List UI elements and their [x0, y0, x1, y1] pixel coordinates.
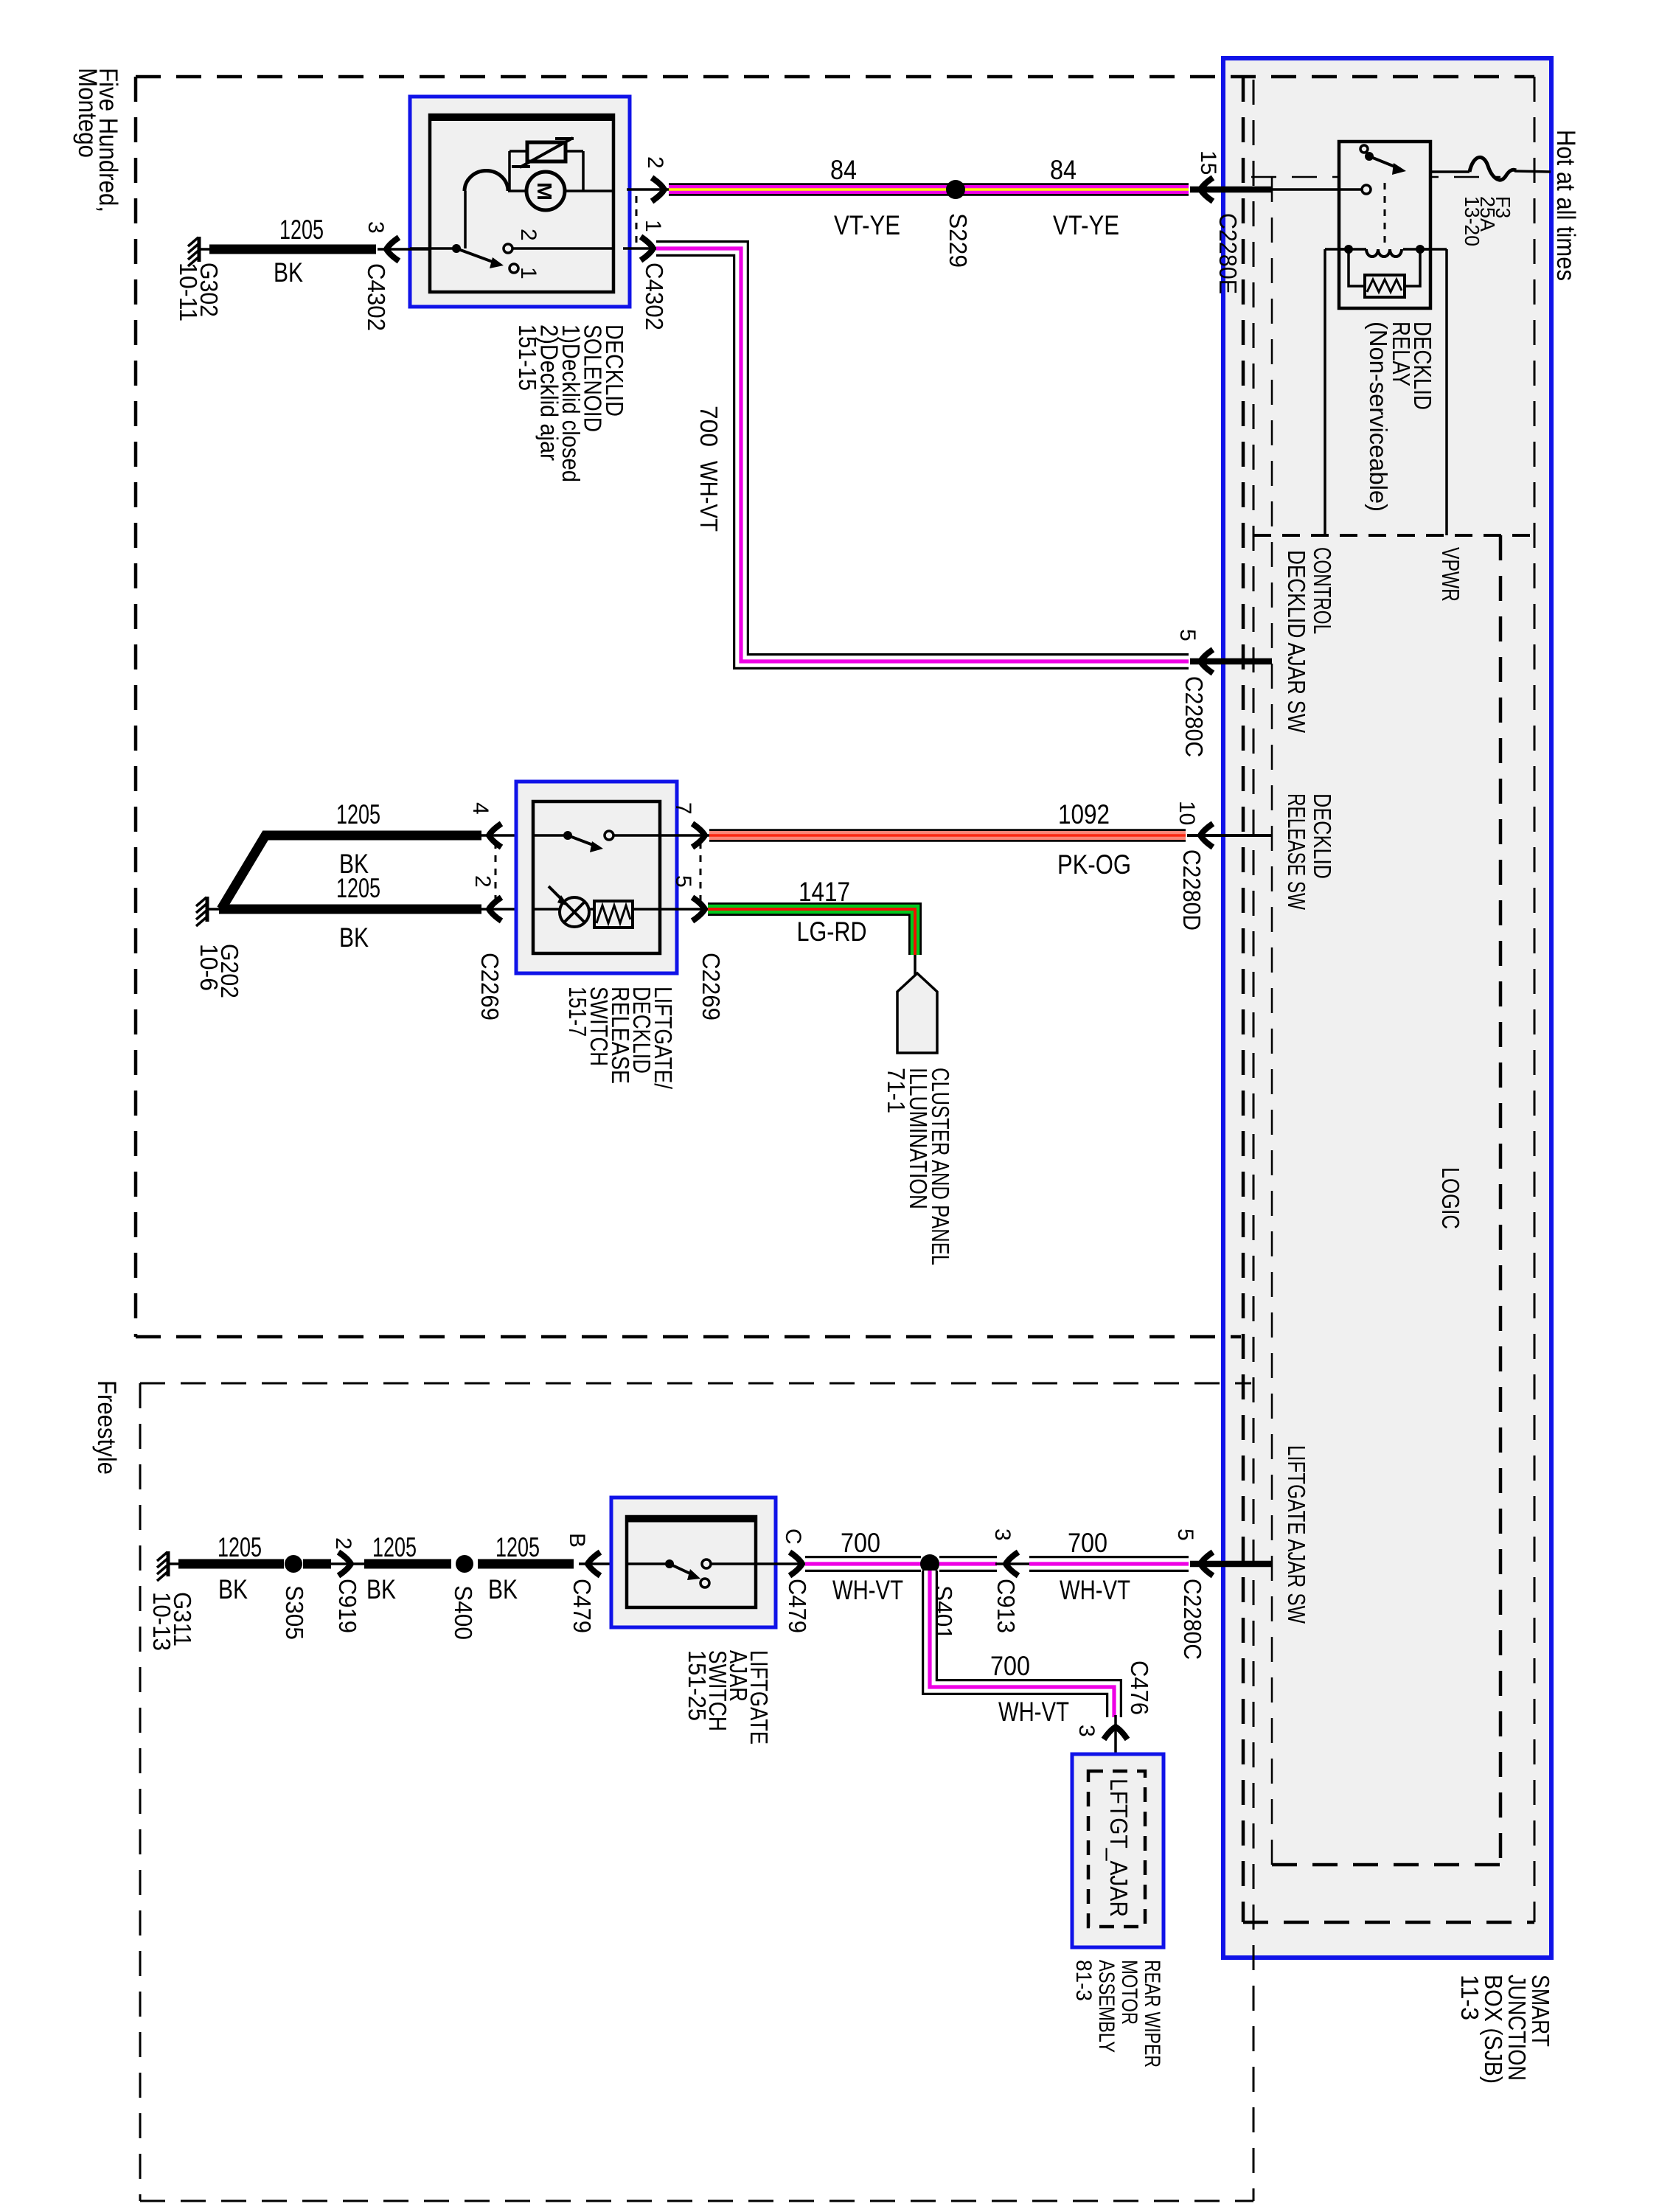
svg-text:C913: C913 — [992, 1579, 1020, 1633]
svg-text:LIFTGATE AJAR SW: LIFTGATE AJAR SW — [1283, 1445, 1310, 1624]
svg-text:4: 4 — [468, 802, 493, 815]
svg-text:84: 84 — [1050, 155, 1077, 185]
svg-text:PK-OG: PK-OG — [1057, 849, 1131, 880]
svg-text:C2280D: C2280D — [1178, 849, 1206, 931]
svg-text:VPWR: VPWR — [1437, 547, 1464, 602]
svg-text:3: 3 — [1074, 1725, 1099, 1737]
svg-text:700: 700 — [990, 1651, 1030, 1681]
svg-text:C2269: C2269 — [698, 953, 725, 1020]
svg-text:5: 5 — [1175, 629, 1200, 641]
svg-text:C476: C476 — [1126, 1660, 1153, 1715]
svg-text:BK: BK — [218, 1574, 248, 1604]
svg-text:1205: 1205 — [372, 1532, 417, 1562]
svg-text:C2280C: C2280C — [1179, 1579, 1206, 1660]
svg-text:C2280C: C2280C — [1180, 676, 1208, 757]
svg-text:BK: BK — [339, 922, 369, 953]
svg-text:2: 2 — [643, 156, 667, 169]
svg-text:WH-VT: WH-VT — [695, 461, 723, 532]
svg-text:WH-VT: WH-VT — [998, 1697, 1069, 1727]
svg-text:Freestyle: Freestyle — [92, 1380, 121, 1475]
svg-text:LOGIC: LOGIC — [1437, 1167, 1464, 1229]
svg-text:B: B — [565, 1533, 589, 1548]
svg-text:VT-YE: VT-YE — [1053, 210, 1119, 240]
svg-text:S305: S305 — [281, 1585, 308, 1640]
svg-text:10-6: 10-6 — [195, 944, 223, 991]
svg-text:BK: BK — [274, 257, 303, 288]
svg-text:1205: 1205 — [218, 1532, 262, 1562]
svg-text:Hot at all times: Hot at all times — [1551, 130, 1580, 281]
svg-text:CONTROL: CONTROL — [1309, 547, 1336, 634]
svg-text:C479: C479 — [784, 1579, 811, 1633]
svg-text:C2269: C2269 — [476, 953, 504, 1020]
svg-text:DECKLID AJAR SW: DECKLID AJAR SW — [1283, 550, 1310, 734]
svg-text:S229: S229 — [945, 213, 972, 268]
svg-text:11-3: 11-3 — [1456, 1975, 1484, 2020]
svg-text:S400: S400 — [450, 1585, 477, 1640]
svg-text:10-11: 10-11 — [175, 262, 202, 321]
svg-text:LFTGT_AJAR: LFTGT_AJAR — [1105, 1778, 1133, 1917]
svg-text:DECKLID: DECKLID — [1309, 793, 1336, 879]
svg-text:ASSEMBLY: ASSEMBLY — [1094, 1960, 1119, 2053]
svg-text:71-1: 71-1 — [883, 1068, 910, 1113]
svg-text:10-13: 10-13 — [148, 1592, 175, 1651]
svg-text:2: 2 — [470, 875, 495, 888]
svg-text:3: 3 — [990, 1528, 1015, 1541]
svg-text:1092: 1092 — [1058, 799, 1110, 829]
svg-text:WH-VT: WH-VT — [1060, 1575, 1130, 1605]
svg-text:MOTOR: MOTOR — [1117, 1960, 1141, 2025]
svg-text:5: 5 — [1173, 1528, 1197, 1541]
svg-text:1205: 1205 — [336, 799, 380, 829]
svg-text:M: M — [533, 182, 556, 201]
svg-text:151-15: 151-15 — [514, 324, 541, 391]
svg-text:84: 84 — [830, 155, 857, 185]
svg-text:C919: C919 — [334, 1579, 361, 1633]
svg-text:1205: 1205 — [279, 215, 324, 245]
svg-text:5: 5 — [671, 875, 695, 888]
svg-text:3: 3 — [364, 221, 388, 234]
svg-text:1205: 1205 — [495, 1532, 540, 1562]
svg-text:10: 10 — [1175, 801, 1199, 825]
svg-text:2: 2 — [331, 1537, 355, 1550]
svg-text:700: 700 — [695, 406, 723, 447]
svg-text:151-25: 151-25 — [684, 1650, 711, 1721]
svg-text:700: 700 — [1068, 1528, 1107, 1558]
svg-text:BK: BK — [488, 1574, 518, 1604]
svg-text:1417: 1417 — [799, 877, 850, 907]
svg-text:C: C — [781, 1528, 805, 1545]
svg-text:(Non-serviceable): (Non-serviceable) — [1365, 321, 1392, 512]
svg-text:2: 2 — [516, 229, 540, 241]
svg-text:C4302: C4302 — [363, 263, 390, 331]
svg-text:VT-YE: VT-YE — [834, 210, 900, 240]
svg-text:Montego: Montego — [73, 68, 102, 158]
svg-text:C4302: C4302 — [641, 262, 668, 330]
svg-text:700: 700 — [841, 1528, 880, 1558]
svg-text:7: 7 — [671, 802, 695, 815]
svg-text:C2280E: C2280E — [1214, 213, 1242, 294]
svg-text:15: 15 — [1196, 150, 1220, 175]
svg-text:WH-VT: WH-VT — [832, 1575, 903, 1605]
svg-text:13-20: 13-20 — [1461, 196, 1484, 246]
svg-text:81-3: 81-3 — [1071, 1960, 1096, 2001]
svg-text:REAR WIPER: REAR WIPER — [1140, 1960, 1164, 2067]
svg-text:151-7: 151-7 — [564, 987, 591, 1037]
svg-text:BK: BK — [366, 1574, 396, 1604]
svg-text:1: 1 — [516, 267, 540, 279]
svg-text:1: 1 — [641, 220, 665, 232]
svg-text:1205: 1205 — [336, 873, 380, 903]
svg-text:RELEASE SW: RELEASE SW — [1283, 793, 1310, 911]
svg-text:C479: C479 — [568, 1579, 596, 1633]
svg-text:LG-RD: LG-RD — [797, 917, 867, 947]
